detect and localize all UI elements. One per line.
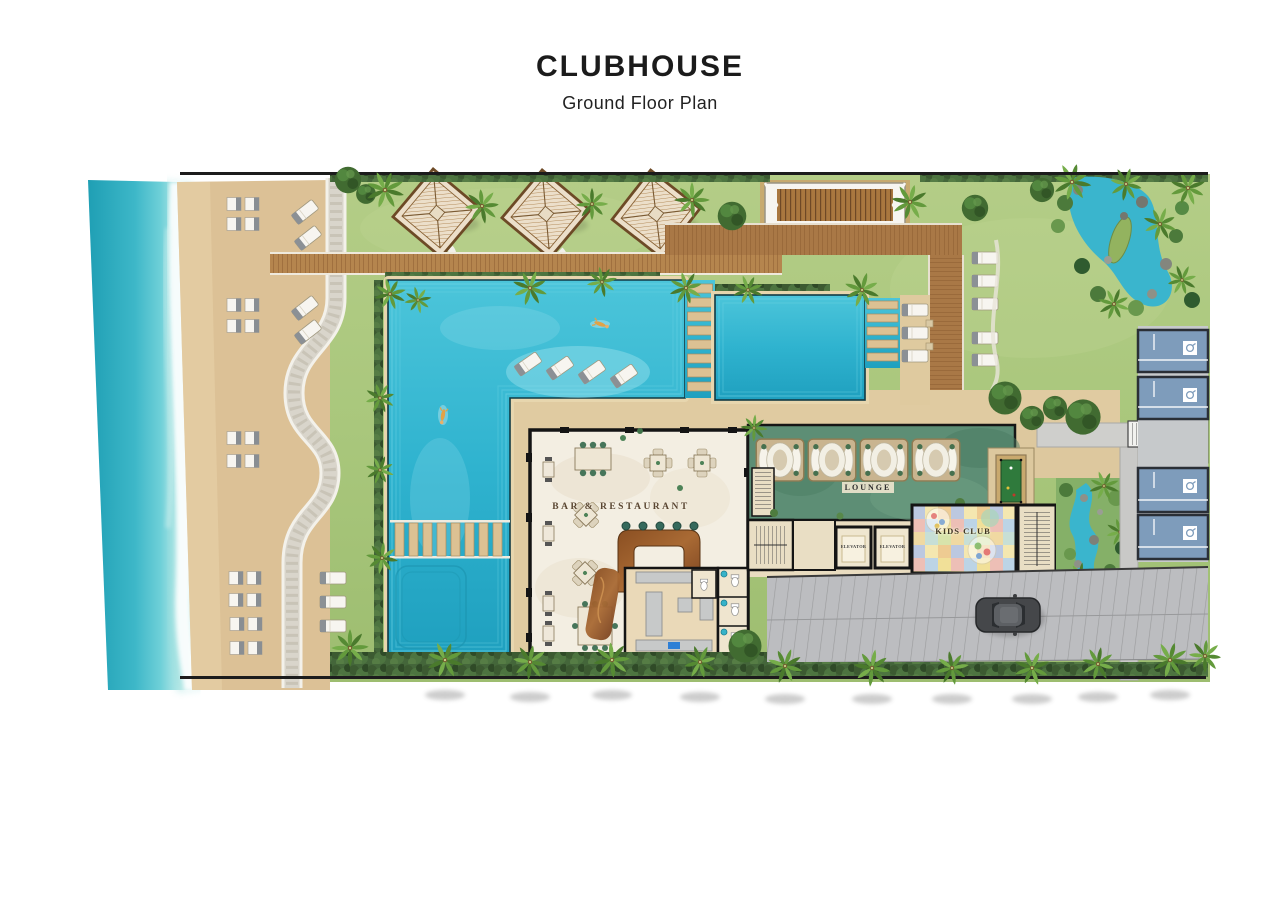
page-title: CLUBHOUSE [0, 50, 1280, 84]
bar-restaurant [526, 427, 750, 662]
elevator-right [875, 527, 910, 568]
drop-shadows [425, 690, 1190, 704]
in-pool-loungers [506, 346, 650, 398]
site-plan-graphic [80, 168, 1212, 713]
ocean [88, 180, 192, 690]
page-subtitle: Ground Floor Plan [0, 93, 1280, 114]
stairwell [748, 520, 835, 570]
elevator-left [836, 527, 871, 568]
kids-club [912, 505, 1016, 573]
screenshot: CLUBHOUSE Ground Floor Plan [0, 0, 1280, 910]
kitchen-wc [692, 570, 716, 598]
stair-room [1018, 505, 1056, 573]
lounge-stair [752, 468, 774, 516]
residence-roofs [1138, 326, 1208, 562]
pergola [760, 180, 910, 230]
car [975, 594, 1045, 637]
floor-plan: BAR & RESTAURANT LOUNGE KIDS CLUB ELEVAT… [80, 168, 1212, 713]
driveway [767, 563, 1208, 668]
plan-header: CLUBHOUSE Ground Floor Plan [0, 50, 1280, 114]
kitchen [625, 568, 718, 655]
